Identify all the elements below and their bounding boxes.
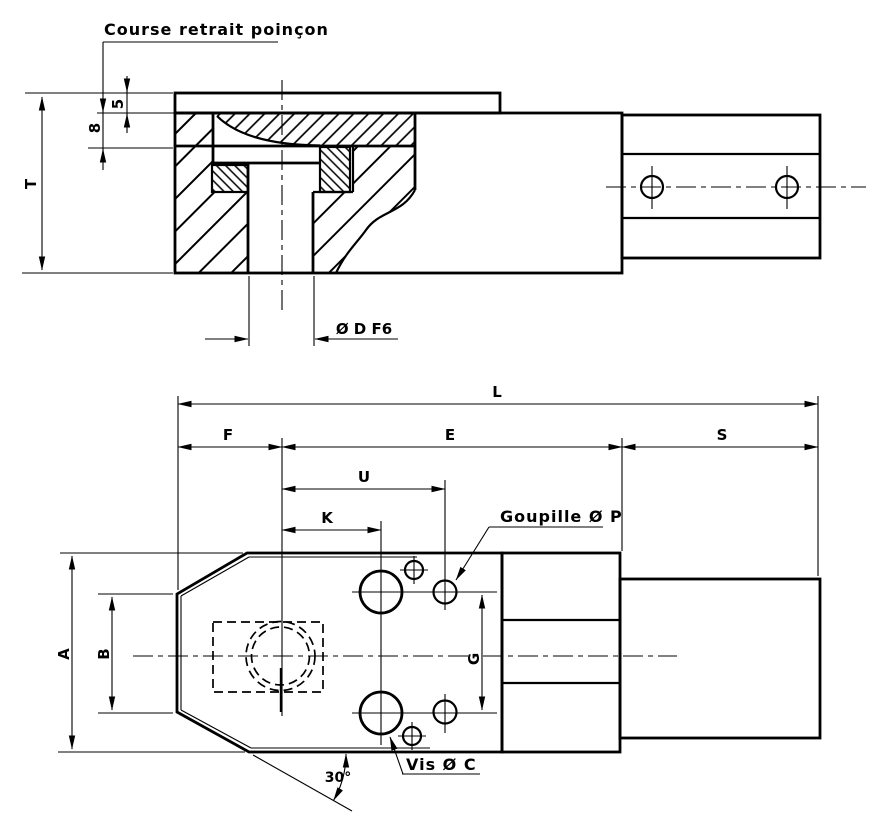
dimension-D-F6: Ø D F6 <box>205 276 398 346</box>
dimension-B: B <box>95 594 173 713</box>
plan-view: L F E S U K A <box>55 383 820 811</box>
dim-A-label: A <box>55 648 73 660</box>
dim-L-label: L <box>492 383 502 401</box>
dim-E-label: E <box>445 426 455 444</box>
course-retrait-label: Course retrait poinçon <box>104 20 329 39</box>
retainer-block-left-hatch <box>212 165 248 192</box>
dimension-A: A <box>55 553 245 752</box>
plan-outline <box>177 553 820 752</box>
dim-F-label: F <box>223 426 233 444</box>
shank-side-view <box>606 115 866 258</box>
drawing-svg: T 5 8 Course retrait poinçon <box>0 0 888 827</box>
dimension-F-E-S: F E S <box>178 426 818 551</box>
vis-label: Vis Ø C <box>406 755 477 774</box>
chamfer-inner-nose-top <box>181 557 249 596</box>
retainer-block-right-hatch <box>320 147 350 192</box>
upper-band-hatch <box>213 113 415 146</box>
dimension-L: L <box>178 383 818 590</box>
dim-8-label: 8 <box>86 123 104 133</box>
angle-30-annotation: 30° <box>253 754 352 811</box>
dim-5-label: 5 <box>109 99 127 109</box>
leader-line <box>390 737 403 774</box>
dimension-K: K <box>282 509 381 530</box>
goupille-label: Goupille Ø P <box>500 507 623 526</box>
dia-D-label: Ø D F6 <box>336 320 392 338</box>
dim-T-label: T <box>22 178 40 189</box>
dim-S-label: S <box>717 426 728 444</box>
dimension-G: G <box>456 592 497 713</box>
front-section-view: T 5 8 Course retrait poinçon <box>22 20 866 346</box>
vis-callout: Vis Ø C <box>390 737 480 774</box>
dimension-T: T <box>22 93 173 273</box>
chamfer-inner-nose-bottom <box>181 710 251 748</box>
dimension-U: U <box>282 468 445 489</box>
plan-centerlines <box>133 438 677 750</box>
plan-holes <box>213 561 457 745</box>
course-retrait-note: Course retrait poinçon <box>103 20 329 42</box>
shank-plan-outline <box>620 579 820 738</box>
dim-B-label: B <box>95 648 113 659</box>
technical-drawing-canvas: T 5 8 Course retrait poinçon <box>0 0 888 827</box>
goupille-callout: Goupille Ø P <box>456 507 623 580</box>
middle-block-outline <box>502 553 620 752</box>
dimension-8: 8 <box>86 42 175 170</box>
top-plate <box>175 93 500 113</box>
dimension-5: 5 <box>109 76 127 133</box>
angle-30-label: 30° <box>325 770 351 786</box>
dim-U-label: U <box>358 468 370 486</box>
dim-G-label: G <box>465 653 483 665</box>
dim-K-label: K <box>321 509 334 527</box>
